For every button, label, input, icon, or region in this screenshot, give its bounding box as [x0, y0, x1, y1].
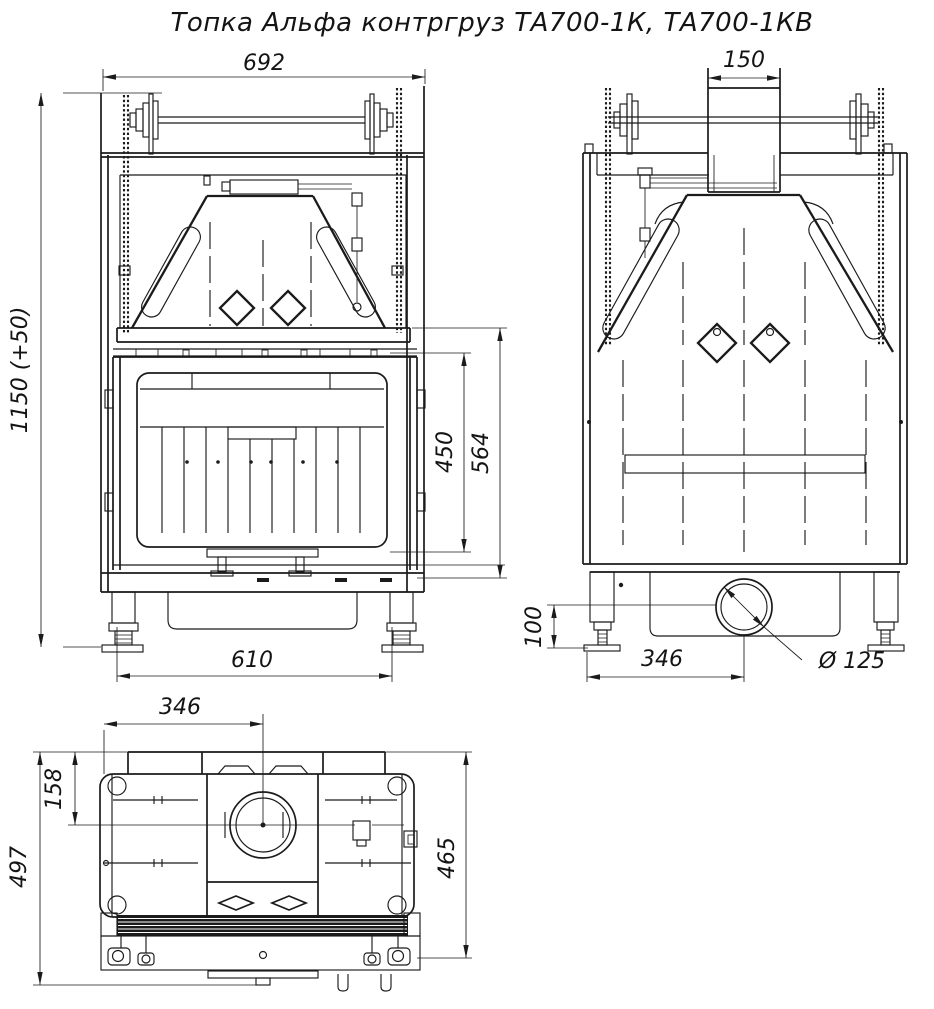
front-right-foot [382, 592, 423, 652]
rear-view [583, 68, 907, 651]
top-back-flange [128, 752, 385, 774]
front-left-diamond [220, 291, 254, 325]
dim-front-width: 692 [243, 51, 285, 76]
front-shelf [113, 328, 417, 356]
front-door-slats [162, 427, 360, 533]
rear-right-foot [868, 572, 904, 651]
front-base [101, 565, 424, 652]
front-view [101, 86, 425, 652]
top-view [68, 752, 420, 991]
top-front-grille [117, 915, 408, 936]
top-hinge-rods [104, 796, 412, 867]
dim-rear-outlet-height: 100 [522, 606, 547, 648]
rear-axle-assembly [608, 94, 880, 154]
rear-body-frame [583, 144, 907, 564]
top-right-diamond [272, 896, 306, 910]
dim-top-outlet-offset-y: 158 [42, 768, 67, 810]
dim-front-height: 1150 (+50) [8, 307, 33, 434]
drawing-sheet: Топка Альфа контргруз ТА700-1К, ТА700-1К… [0, 0, 934, 1009]
front-door-handle [207, 549, 318, 576]
front-hood [132, 196, 385, 328]
front-body-frame [101, 86, 424, 592]
dim-top-outlet-offset-x: 346 [159, 695, 201, 720]
dim-rear-flue-width: 150 [723, 48, 765, 73]
rear-left-foot [584, 572, 620, 651]
dimension-lines: 692 1150 (+50) 450 564 610 150 100 346 Ø… [7, 48, 885, 985]
dim-front-feet-spacing: 610 [231, 648, 273, 673]
top-left-diamond [219, 896, 253, 910]
dim-top-overall-depth: 497 [7, 846, 32, 888]
rear-hood [598, 195, 893, 362]
rear-crossbar [625, 455, 865, 473]
drawing-title: Топка Альфа контргруз ТА700-1К, ТА700-1К… [171, 8, 814, 38]
dim-front-glass-height: 450 [433, 431, 458, 473]
top-body [68, 774, 417, 917]
dim-top-body-depth: 465 [435, 837, 460, 879]
dim-rear-outlet-diameter: Ø 125 [818, 649, 885, 674]
front-counterweight-chains [119, 88, 403, 333]
technical-drawing: Топка Альфа контргруз ТА700-1К, ТА700-1К… [0, 0, 934, 1009]
front-door-glass [137, 373, 387, 547]
rear-panel-slats [587, 360, 903, 552]
rear-right-diamond [751, 324, 789, 362]
top-valve-fitting [353, 821, 370, 840]
front-right-diamond [271, 291, 305, 325]
front-door [105, 357, 425, 576]
rear-flue-duct [708, 68, 780, 192]
dim-front-firebox-height: 564 [469, 432, 494, 474]
front-left-foot [102, 592, 143, 652]
front-axle-assembly [130, 94, 393, 154]
dim-rear-outlet-offset: 346 [641, 647, 683, 672]
rear-left-diamond [698, 324, 736, 362]
top-handle-bar [208, 971, 318, 978]
